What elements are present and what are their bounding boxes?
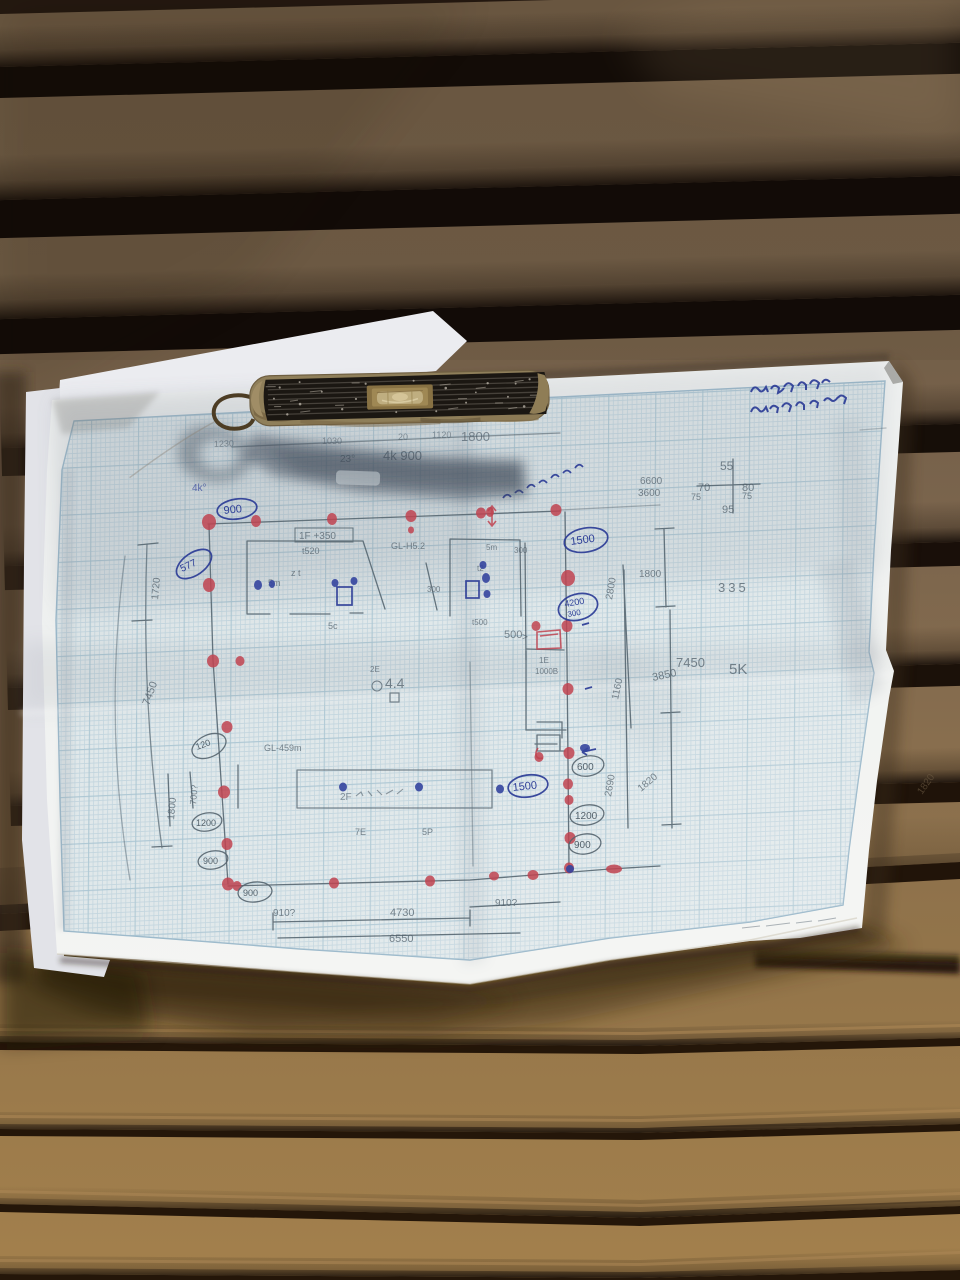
- svg-text:5c: 5c: [328, 621, 338, 631]
- svg-text:z t: z t: [291, 568, 301, 578]
- svg-text:t500: t500: [472, 618, 488, 627]
- svg-text:t520: t520: [302, 546, 320, 556]
- svg-text:5m: 5m: [486, 543, 497, 552]
- svg-text:910?: 910?: [495, 898, 518, 909]
- svg-text:1E: 1E: [539, 656, 549, 665]
- svg-text:55: 55: [720, 459, 734, 473]
- svg-text:700?: 700?: [188, 784, 200, 805]
- svg-text:6550: 6550: [389, 933, 413, 945]
- svg-text:1120: 1120: [432, 430, 451, 440]
- svg-text:20: 20: [398, 432, 408, 442]
- svg-text:4k°: 4k°: [192, 483, 207, 494]
- svg-text:1000B: 1000B: [535, 667, 558, 676]
- svg-text:1800: 1800: [461, 429, 490, 444]
- svg-text:5P: 5P: [422, 827, 433, 837]
- svg-text:300: 300: [427, 585, 441, 594]
- svg-text:5K: 5K: [729, 661, 747, 678]
- svg-text:6600: 6600: [640, 476, 663, 487]
- svg-text:75: 75: [742, 491, 752, 501]
- svg-text:910?: 910?: [273, 908, 296, 919]
- svg-text:GL-459m: GL-459m: [264, 743, 302, 753]
- svg-text:1800: 1800: [166, 797, 179, 821]
- svg-text:2E: 2E: [370, 665, 380, 674]
- svg-text:335: 335: [718, 580, 749, 595]
- svg-text:7450: 7450: [676, 655, 705, 670]
- svg-text:GL-H5.2: GL-H5.2: [391, 541, 425, 551]
- svg-text:1F +350: 1F +350: [299, 531, 336, 542]
- svg-text:900: 900: [243, 888, 258, 898]
- svg-text:900: 900: [223, 503, 243, 517]
- svg-text:4.4: 4.4: [385, 675, 405, 691]
- svg-text:1720: 1720: [150, 577, 163, 601]
- svg-text:1800: 1800: [639, 569, 662, 580]
- svg-text:1500: 1500: [512, 779, 538, 793]
- svg-text:95: 95: [722, 504, 734, 516]
- svg-text:75: 75: [691, 492, 701, 502]
- svg-text:900: 900: [203, 856, 218, 866]
- svg-text:7E: 7E: [355, 827, 366, 837]
- svg-text:4730: 4730: [390, 907, 414, 919]
- svg-text:>: >: [522, 632, 528, 643]
- svg-text:900: 900: [574, 840, 591, 851]
- svg-text:3600: 3600: [638, 488, 661, 499]
- svg-text:1200: 1200: [575, 811, 598, 822]
- svg-text:500: 500: [504, 629, 522, 641]
- svg-text:600: 600: [577, 762, 594, 773]
- svg-text:300: 300: [514, 546, 528, 555]
- svg-text:2F: 2F: [340, 792, 352, 803]
- svg-text:1200: 1200: [196, 818, 216, 828]
